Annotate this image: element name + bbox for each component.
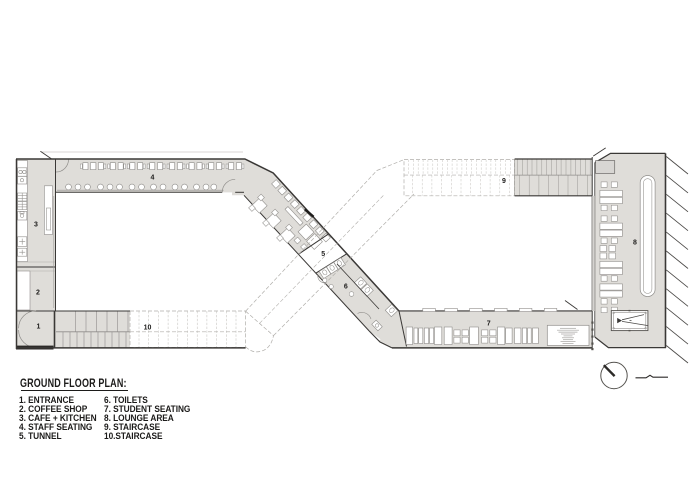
svg-text:2: 2 bbox=[36, 289, 40, 296]
svg-text:8: 8 bbox=[633, 239, 637, 246]
svg-text:4: 4 bbox=[150, 174, 154, 181]
svg-text:5: 5 bbox=[321, 251, 325, 258]
svg-text:10: 10 bbox=[144, 324, 152, 331]
svg-text:6: 6 bbox=[344, 284, 348, 291]
svg-text:9: 9 bbox=[502, 178, 506, 185]
svg-text:7: 7 bbox=[487, 320, 491, 327]
svg-text:1: 1 bbox=[37, 324, 41, 331]
svg-text:3: 3 bbox=[34, 221, 38, 228]
